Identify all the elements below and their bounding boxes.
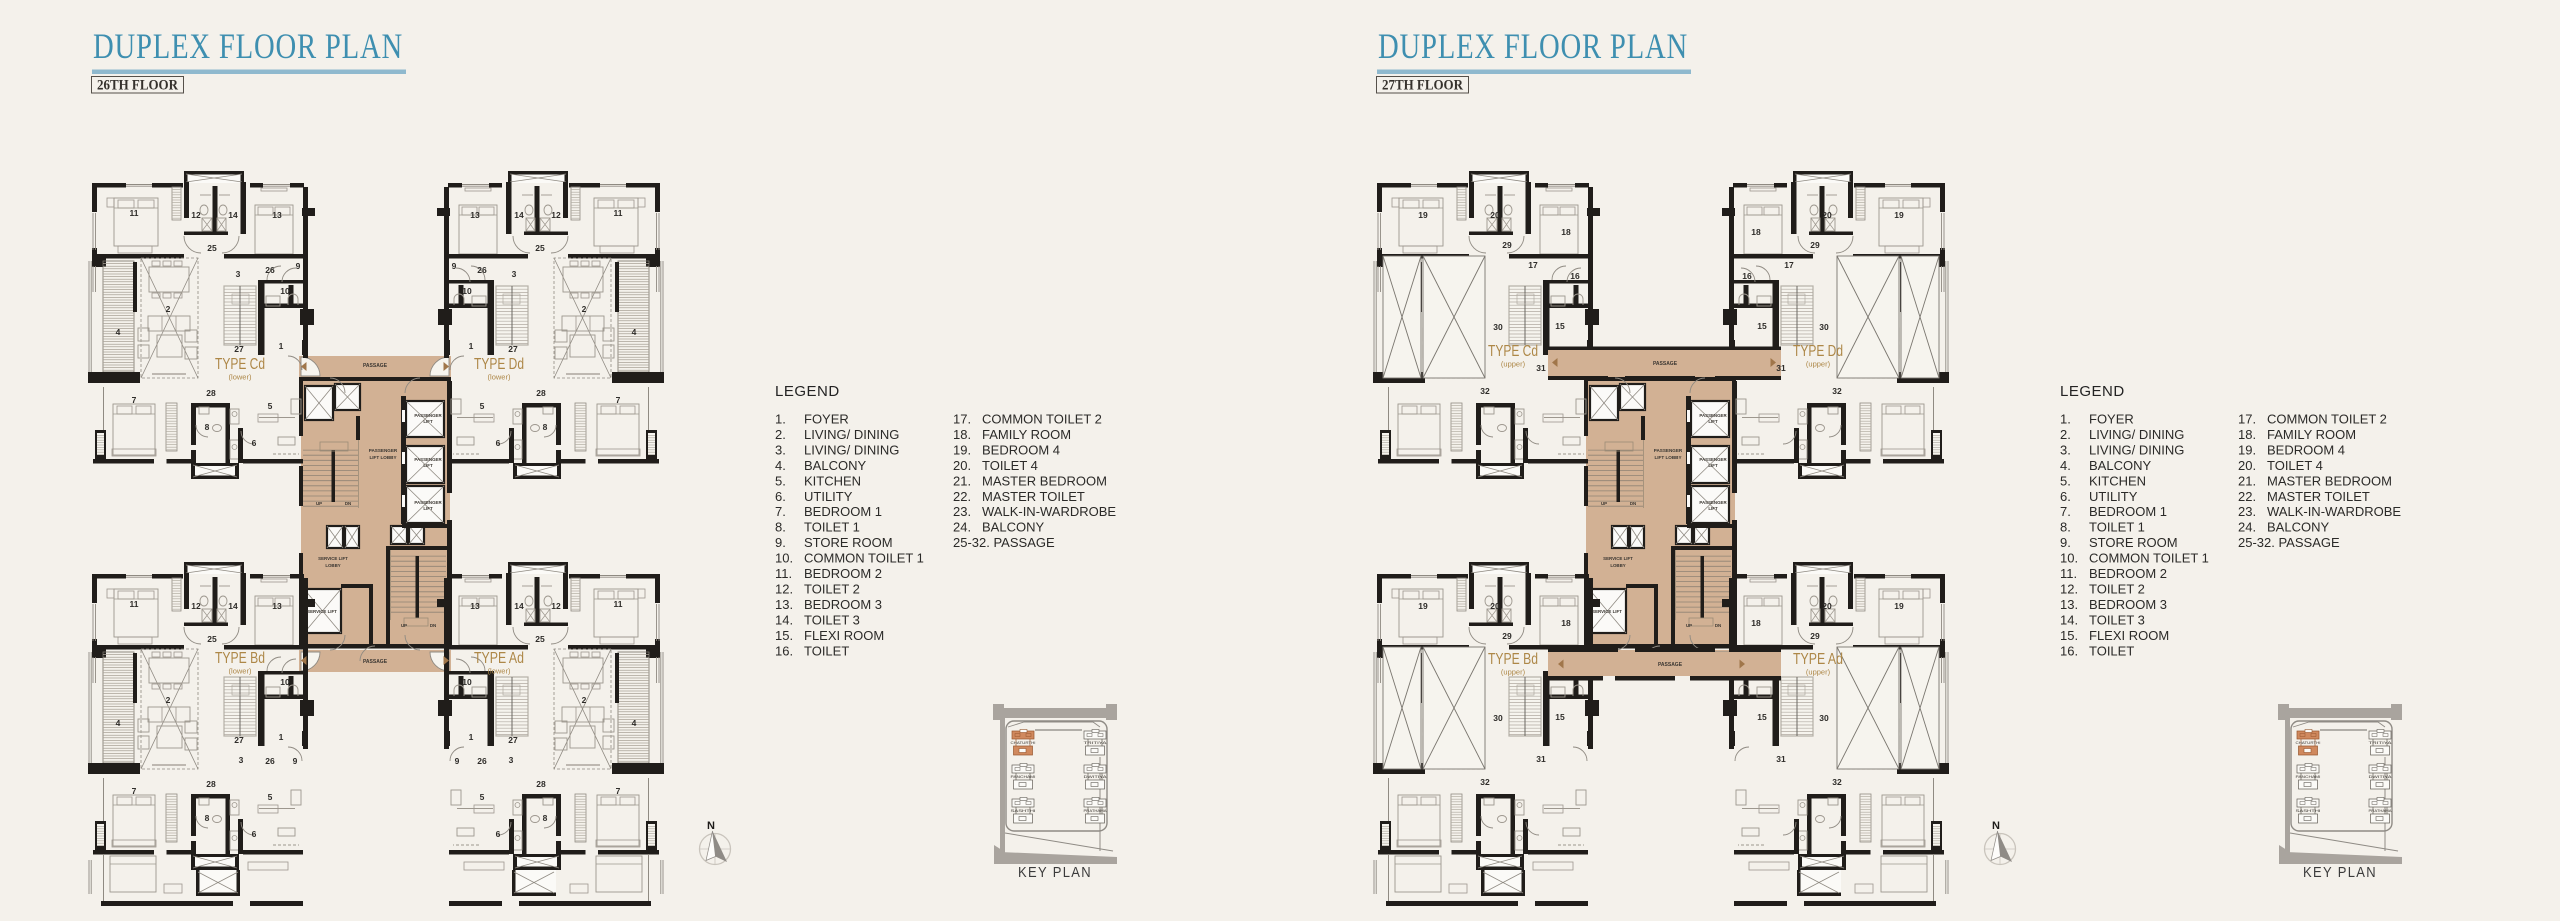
svg-text:1: 1 — [469, 341, 474, 351]
svg-text:4: 4 — [116, 327, 121, 337]
svg-text:11: 11 — [614, 599, 623, 609]
svg-text:1: 1 — [469, 732, 474, 742]
svg-text:8: 8 — [543, 422, 548, 432]
svg-text:29: 29 — [1502, 240, 1512, 250]
svg-text:TYPE Dd: TYPE Dd — [474, 356, 524, 373]
svg-text:11.: 11. — [775, 566, 792, 581]
svg-text:13.: 13. — [2060, 597, 2078, 612]
svg-text:23.: 23. — [2238, 504, 2256, 519]
svg-text:SERVICE LIFT: SERVICE LIFT — [1603, 556, 1633, 561]
svg-text:18: 18 — [1561, 618, 1571, 628]
svg-text:(lower): (lower) — [488, 667, 511, 676]
svg-text:19: 19 — [1418, 210, 1428, 220]
svg-text:17: 17 — [1784, 260, 1794, 270]
svg-text:25: 25 — [535, 243, 545, 253]
svg-text:PASSENGER: PASSENGER — [1654, 448, 1683, 453]
svg-text:26: 26 — [265, 265, 275, 275]
svg-text:N: N — [1992, 820, 2000, 832]
svg-text:3.: 3. — [775, 442, 786, 457]
svg-text:DWITIYA: DWITIYA — [2369, 775, 2393, 779]
svg-text:22.: 22. — [2238, 489, 2256, 504]
svg-text:25-32. PASSAGE: 25-32. PASSAGE — [2238, 535, 2340, 550]
svg-text:PASSENGER: PASSENGER — [1699, 500, 1727, 505]
svg-text:(lower): (lower) — [488, 373, 511, 382]
svg-text:17: 17 — [1528, 260, 1538, 270]
svg-text:DN: DN — [345, 501, 351, 506]
svg-text:9.: 9. — [775, 535, 786, 550]
svg-text:8: 8 — [205, 422, 210, 432]
svg-text:24.: 24. — [953, 520, 971, 535]
svg-text:BEDROOM 2: BEDROOM 2 — [804, 566, 882, 581]
svg-text:DWITIYA: DWITIYA — [1084, 775, 1108, 779]
svg-text:6.: 6. — [775, 489, 786, 504]
svg-text:KITCHEN: KITCHEN — [2089, 473, 2146, 488]
svg-text:TYPE Cd: TYPE Cd — [1488, 343, 1538, 360]
svg-text:STORE ROOM: STORE ROOM — [2089, 535, 2178, 550]
svg-text:11.: 11. — [2060, 566, 2077, 581]
svg-text:8: 8 — [205, 813, 210, 823]
svg-text:8.: 8. — [2060, 520, 2071, 535]
svg-text:KEY PLAN: KEY PLAN — [2303, 865, 2377, 881]
svg-text:SERVICE LIFT: SERVICE LIFT — [1592, 609, 1622, 614]
svg-text:TOILET: TOILET — [804, 643, 849, 658]
svg-text:19.: 19. — [2238, 442, 2256, 457]
svg-text:30: 30 — [1819, 322, 1829, 332]
svg-text:LEGEND: LEGEND — [2060, 383, 2125, 400]
svg-text:BALCONY: BALCONY — [982, 520, 1044, 535]
svg-text:3: 3 — [239, 755, 244, 765]
svg-text:27: 27 — [234, 735, 244, 745]
svg-text:26TH FLOOR: 26TH FLOOR — [97, 78, 178, 94]
svg-text:LOBBY: LOBBY — [1610, 563, 1625, 568]
svg-text:PASSAGE: PASSAGE — [1658, 662, 1683, 668]
svg-text:5: 5 — [268, 401, 273, 411]
svg-text:20.: 20. — [2238, 458, 2256, 473]
svg-text:14: 14 — [228, 210, 238, 220]
svg-text:26: 26 — [477, 265, 487, 275]
svg-text:UP: UP — [401, 623, 407, 628]
svg-text:5: 5 — [480, 401, 485, 411]
svg-text:BALCONY: BALCONY — [2267, 520, 2329, 535]
svg-text:3.: 3. — [2060, 442, 2071, 457]
svg-text:27: 27 — [508, 344, 518, 354]
svg-text:11: 11 — [614, 208, 623, 218]
svg-text:4.: 4. — [2060, 458, 2071, 473]
svg-text:COMMON TOILET 1: COMMON TOILET 1 — [804, 551, 924, 566]
svg-text:7: 7 — [132, 395, 137, 405]
svg-text:14: 14 — [514, 210, 524, 220]
svg-text:27TH FLOOR: 27TH FLOOR — [1382, 78, 1463, 94]
svg-text:TYPE Bd: TYPE Bd — [215, 650, 265, 667]
svg-text:PASSENGER: PASSENGER — [1699, 413, 1727, 418]
svg-text:11: 11 — [130, 208, 139, 218]
svg-text:28: 28 — [206, 388, 216, 398]
svg-text:9: 9 — [455, 756, 460, 766]
svg-text:5.: 5. — [775, 473, 786, 488]
svg-text:26: 26 — [265, 756, 275, 766]
svg-text:TRITIYA: TRITIYA — [1084, 741, 1108, 745]
svg-text:6: 6 — [496, 829, 501, 839]
svg-text:KEY PLAN: KEY PLAN — [1018, 865, 1092, 881]
svg-text:TYPE Ad: TYPE Ad — [1793, 651, 1843, 668]
svg-text:15: 15 — [1555, 712, 1565, 722]
svg-text:BALCONY: BALCONY — [2089, 458, 2151, 473]
svg-text:20: 20 — [1822, 210, 1832, 220]
svg-text:LIVING/ DINING: LIVING/ DINING — [2089, 442, 2184, 457]
svg-text:25: 25 — [207, 243, 217, 253]
svg-text:N: N — [707, 820, 715, 832]
svg-text:20.: 20. — [953, 458, 971, 473]
svg-text:UP: UP — [1686, 623, 1692, 628]
svg-text:(lower): (lower) — [229, 667, 252, 676]
svg-text:TYPE Ad: TYPE Ad — [474, 650, 524, 667]
svg-text:9.: 9. — [2060, 535, 2071, 550]
svg-text:WALK-IN-WARDROBE: WALK-IN-WARDROBE — [2267, 504, 2401, 519]
svg-text:LEGEND: LEGEND — [775, 383, 840, 400]
svg-text:16.: 16. — [775, 643, 793, 658]
svg-text:FOYER: FOYER — [804, 412, 849, 427]
svg-text:28: 28 — [536, 388, 546, 398]
svg-text:12.: 12. — [775, 581, 793, 596]
svg-text:PANCHAMI: PANCHAMI — [2296, 775, 2321, 779]
svg-text:2: 2 — [166, 695, 171, 705]
svg-text:MASTER TOILET: MASTER TOILET — [2267, 489, 2370, 504]
svg-text:5: 5 — [268, 792, 273, 802]
svg-text:4: 4 — [116, 718, 121, 728]
svg-text:DUPLEX FLOOR PLAN: DUPLEX FLOOR PLAN — [93, 26, 403, 66]
svg-text:7.: 7. — [775, 504, 786, 519]
svg-text:BEDROOM 4: BEDROOM 4 — [2267, 442, 2345, 457]
svg-text:1: 1 — [279, 341, 284, 351]
svg-text:12: 12 — [191, 210, 201, 220]
svg-text:CHATURTHI: CHATURTHI — [1011, 741, 1036, 745]
svg-text:TOILET: TOILET — [2089, 643, 2134, 658]
svg-text:15.: 15. — [775, 628, 793, 643]
svg-text:28: 28 — [206, 779, 216, 789]
svg-text:13: 13 — [272, 601, 282, 611]
svg-text:12: 12 — [551, 210, 561, 220]
svg-text:LIFT: LIFT — [423, 463, 433, 468]
svg-text:CHATURTHI: CHATURTHI — [2296, 741, 2321, 745]
svg-text:BEDROOM 4: BEDROOM 4 — [982, 442, 1060, 457]
svg-text:MASTER BEDROOM: MASTER BEDROOM — [982, 473, 1107, 488]
svg-text:25: 25 — [535, 634, 545, 644]
svg-text:5.: 5. — [2060, 473, 2071, 488]
svg-text:20: 20 — [1490, 210, 1500, 220]
svg-text:LIFT: LIFT — [423, 506, 433, 511]
svg-text:BEDROOM 1: BEDROOM 1 — [804, 504, 882, 519]
svg-text:LIFT: LIFT — [1708, 419, 1718, 424]
svg-text:30: 30 — [1493, 713, 1503, 723]
svg-text:TOILET 3: TOILET 3 — [2089, 612, 2145, 627]
svg-text:FAMILY ROOM: FAMILY ROOM — [982, 427, 1071, 442]
svg-text:32: 32 — [1480, 386, 1490, 396]
svg-text:27: 27 — [508, 735, 518, 745]
svg-text:31: 31 — [1776, 754, 1786, 764]
svg-text:4: 4 — [632, 718, 637, 728]
svg-text:16: 16 — [1570, 271, 1580, 281]
svg-text:STORE ROOM: STORE ROOM — [804, 535, 893, 550]
svg-text:LIVING/ DINING: LIVING/ DINING — [804, 442, 899, 457]
svg-text:13: 13 — [470, 601, 480, 611]
svg-text:19: 19 — [1418, 601, 1428, 611]
svg-text:COMMON TOILET 2: COMMON TOILET 2 — [982, 412, 1102, 427]
svg-text:BALCONY: BALCONY — [804, 458, 866, 473]
svg-text:FLEXI ROOM: FLEXI ROOM — [804, 628, 884, 643]
svg-text:29: 29 — [1502, 631, 1512, 641]
svg-text:BEDROOM 2: BEDROOM 2 — [2089, 566, 2167, 581]
svg-text:15: 15 — [1555, 321, 1565, 331]
svg-text:UP: UP — [1601, 501, 1607, 506]
svg-text:18: 18 — [1561, 227, 1571, 237]
svg-text:MASTER BEDROOM: MASTER BEDROOM — [2267, 473, 2392, 488]
svg-text:WALK-IN-WARDROBE: WALK-IN-WARDROBE — [982, 504, 1116, 519]
svg-text:27: 27 — [234, 344, 244, 354]
svg-text:COMMON TOILET 1: COMMON TOILET 1 — [2089, 551, 2209, 566]
svg-text:KITCHEN: KITCHEN — [804, 473, 861, 488]
svg-text:COMMON TOILET 2: COMMON TOILET 2 — [2267, 412, 2387, 427]
svg-text:7: 7 — [616, 395, 621, 405]
svg-text:21.: 21. — [953, 473, 971, 488]
svg-text:10.: 10. — [775, 551, 793, 566]
svg-text:12: 12 — [551, 601, 561, 611]
svg-text:30: 30 — [1493, 322, 1503, 332]
svg-text:10: 10 — [280, 286, 290, 296]
svg-text:5: 5 — [480, 792, 485, 802]
svg-text:DN: DN — [1630, 501, 1636, 506]
svg-text:12.: 12. — [2060, 581, 2078, 596]
svg-text:SASHTHI: SASHTHI — [2296, 809, 2321, 813]
svg-text:28: 28 — [536, 779, 546, 789]
svg-text:31: 31 — [1536, 363, 1546, 373]
svg-text:29: 29 — [1810, 631, 1820, 641]
svg-text:14: 14 — [228, 601, 238, 611]
svg-text:14.: 14. — [775, 612, 793, 627]
svg-text:PRATHAMA: PRATHAMA — [2369, 809, 2393, 813]
svg-text:LIFT: LIFT — [1708, 463, 1718, 468]
svg-text:15.: 15. — [2060, 628, 2078, 643]
svg-text:8.: 8. — [775, 520, 786, 535]
svg-text:TOILET 1: TOILET 1 — [2089, 520, 2145, 535]
svg-text:(upper): (upper) — [1806, 360, 1831, 369]
svg-text:19.: 19. — [953, 442, 971, 457]
svg-text:24.: 24. — [2238, 520, 2256, 535]
svg-text:6: 6 — [252, 438, 257, 448]
svg-text:2.: 2. — [775, 427, 786, 442]
svg-text:TYPE Cd: TYPE Cd — [215, 356, 265, 373]
svg-text:9: 9 — [293, 756, 298, 766]
svg-text:10: 10 — [280, 677, 290, 687]
svg-text:19: 19 — [1894, 210, 1904, 220]
svg-text:17.: 17. — [953, 412, 971, 427]
svg-text:DN: DN — [1715, 623, 1721, 628]
svg-text:(lower): (lower) — [229, 373, 252, 382]
svg-text:PASSENGER: PASSENGER — [414, 413, 442, 418]
svg-text:LOBBY: LOBBY — [325, 563, 340, 568]
svg-text:BEDROOM 3: BEDROOM 3 — [804, 597, 882, 612]
svg-text:1.: 1. — [775, 412, 786, 427]
svg-text:LIVING/ DINING: LIVING/ DINING — [2089, 427, 2184, 442]
svg-text:20: 20 — [1490, 601, 1500, 611]
svg-text:30: 30 — [1819, 713, 1829, 723]
svg-text:TYPE Bd: TYPE Bd — [1488, 651, 1538, 668]
svg-text:15: 15 — [1757, 321, 1767, 331]
svg-text:LIFT LOBBY: LIFT LOBBY — [369, 455, 396, 460]
svg-text:7: 7 — [132, 786, 137, 796]
svg-text:(upper): (upper) — [1501, 668, 1526, 677]
svg-text:31: 31 — [1776, 363, 1786, 373]
svg-text:TOILET 1: TOILET 1 — [804, 520, 860, 535]
svg-text:UTILITY: UTILITY — [2089, 489, 2138, 504]
svg-text:(upper): (upper) — [1501, 360, 1526, 369]
svg-text:TOILET 2: TOILET 2 — [804, 581, 860, 596]
svg-text:31: 31 — [1536, 754, 1546, 764]
svg-text:6.: 6. — [2060, 489, 2071, 504]
svg-text:PASSENGER: PASSENGER — [1699, 457, 1727, 462]
svg-text:10: 10 — [462, 677, 472, 687]
svg-text:29: 29 — [1810, 240, 1820, 250]
svg-text:UTILITY: UTILITY — [804, 489, 853, 504]
svg-text:6: 6 — [252, 829, 257, 839]
svg-text:2: 2 — [582, 695, 587, 705]
svg-text:32: 32 — [1480, 777, 1490, 787]
svg-text:SASHTHI: SASHTHI — [1011, 809, 1036, 813]
svg-text:18.: 18. — [953, 427, 971, 442]
svg-text:PRATHAMA: PRATHAMA — [1084, 809, 1108, 813]
svg-text:2.: 2. — [2060, 427, 2071, 442]
svg-text:PASSAGE: PASSAGE — [1653, 361, 1678, 367]
svg-text:TOILET 4: TOILET 4 — [982, 458, 1038, 473]
svg-text:TOILET 3: TOILET 3 — [804, 612, 860, 627]
svg-text:UP: UP — [316, 501, 322, 506]
svg-text:7.: 7. — [2060, 504, 2071, 519]
svg-text:21.: 21. — [2238, 473, 2256, 488]
svg-text:26: 26 — [477, 756, 487, 766]
svg-text:LIFT LOBBY: LIFT LOBBY — [1654, 455, 1681, 460]
svg-text:6: 6 — [496, 438, 501, 448]
svg-text:16.: 16. — [2060, 643, 2078, 658]
svg-text:TOILET 2: TOILET 2 — [2089, 581, 2145, 596]
svg-text:SERVICE LIFT: SERVICE LIFT — [318, 556, 348, 561]
svg-text:DN: DN — [430, 623, 436, 628]
svg-text:1.: 1. — [2060, 412, 2071, 427]
svg-text:9: 9 — [296, 261, 301, 271]
svg-text:(upper): (upper) — [1806, 668, 1831, 677]
svg-text:19: 19 — [1894, 601, 1904, 611]
svg-text:FLEXI ROOM: FLEXI ROOM — [2089, 628, 2169, 643]
svg-text:18.: 18. — [2238, 427, 2256, 442]
svg-text:13.: 13. — [775, 597, 793, 612]
svg-text:16: 16 — [1742, 271, 1752, 281]
svg-text:14: 14 — [514, 601, 524, 611]
svg-text:FOYER: FOYER — [2089, 412, 2134, 427]
svg-text:TOILET 4: TOILET 4 — [2267, 458, 2323, 473]
svg-text:FAMILY ROOM: FAMILY ROOM — [2267, 427, 2356, 442]
svg-text:10: 10 — [462, 286, 472, 296]
svg-text:22.: 22. — [953, 489, 971, 504]
svg-text:2: 2 — [582, 304, 587, 314]
svg-text:13: 13 — [470, 210, 480, 220]
svg-text:32: 32 — [1832, 777, 1842, 787]
svg-text:32: 32 — [1832, 386, 1842, 396]
svg-text:TRITIYA: TRITIYA — [2369, 741, 2393, 745]
svg-text:14.: 14. — [2060, 612, 2078, 627]
svg-text:8: 8 — [543, 813, 548, 823]
svg-text:TYPE Dd: TYPE Dd — [1793, 343, 1843, 360]
svg-text:18: 18 — [1751, 618, 1761, 628]
svg-text:LIFT: LIFT — [1708, 506, 1718, 511]
svg-text:18: 18 — [1751, 227, 1761, 237]
svg-text:LIVING/ DINING: LIVING/ DINING — [804, 427, 899, 442]
svg-text:11: 11 — [130, 599, 139, 609]
svg-text:7: 7 — [616, 786, 621, 796]
svg-text:15: 15 — [1757, 712, 1767, 722]
svg-text:PASSENGER: PASSENGER — [414, 457, 442, 462]
svg-text:4: 4 — [632, 327, 637, 337]
svg-text:13: 13 — [272, 210, 282, 220]
svg-text:12: 12 — [191, 601, 201, 611]
svg-text:PANCHAMI: PANCHAMI — [1011, 775, 1036, 779]
svg-text:1: 1 — [279, 732, 284, 742]
svg-text:3: 3 — [512, 269, 517, 279]
svg-text:9: 9 — [452, 261, 457, 271]
svg-text:23.: 23. — [953, 504, 971, 519]
svg-text:SERVICE LIFT: SERVICE LIFT — [307, 609, 337, 614]
svg-text:PASSAGE: PASSAGE — [363, 363, 388, 369]
svg-text:PASSAGE: PASSAGE — [363, 659, 388, 665]
svg-text:BEDROOM 3: BEDROOM 3 — [2089, 597, 2167, 612]
svg-text:20: 20 — [1822, 601, 1832, 611]
svg-text:PASSENGER: PASSENGER — [414, 500, 442, 505]
svg-text:25: 25 — [207, 634, 217, 644]
svg-text:DUPLEX FLOOR PLAN: DUPLEX FLOOR PLAN — [1378, 26, 1688, 66]
svg-text:MASTER TOILET: MASTER TOILET — [982, 489, 1085, 504]
svg-text:25-32. PASSAGE: 25-32. PASSAGE — [953, 535, 1055, 550]
svg-text:2: 2 — [166, 304, 171, 314]
svg-text:BEDROOM 1: BEDROOM 1 — [2089, 504, 2167, 519]
svg-text:10.: 10. — [2060, 551, 2078, 566]
svg-text:LIFT: LIFT — [423, 419, 433, 424]
svg-text:17.: 17. — [2238, 412, 2256, 427]
svg-text:PASSENGER: PASSENGER — [369, 448, 398, 453]
svg-text:3: 3 — [509, 755, 514, 765]
svg-text:3: 3 — [236, 269, 241, 279]
svg-text:4.: 4. — [775, 458, 786, 473]
